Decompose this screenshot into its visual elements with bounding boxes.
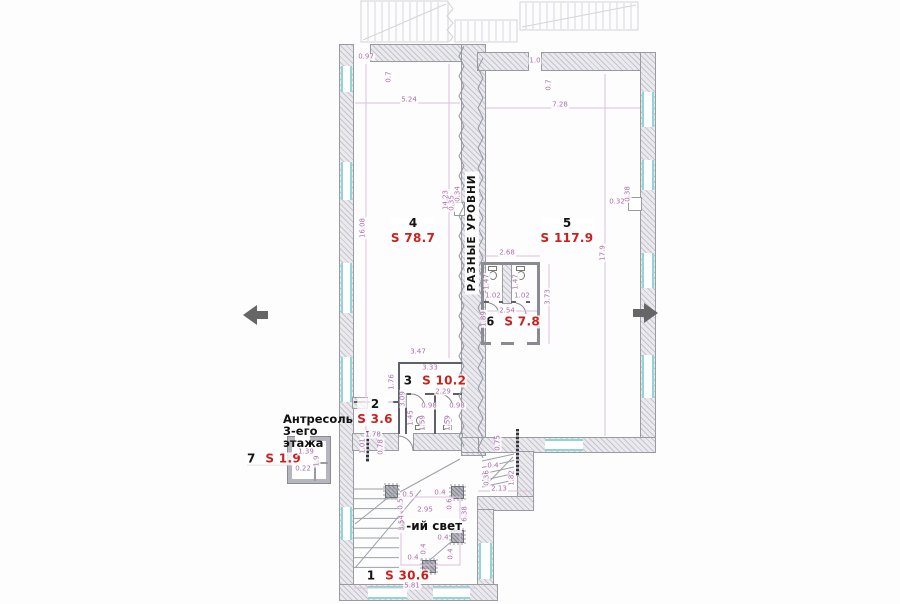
dimension-label: 0.5 (398, 497, 405, 510)
dimension-label: 0.97 (357, 54, 375, 61)
dimension-label: 7.28 (551, 102, 569, 109)
wc-room-wall (481, 262, 540, 265)
window (433, 586, 470, 599)
dimension-label: 0.22 (294, 466, 312, 473)
room-label: 3 S 10.2 (404, 374, 467, 387)
window (341, 66, 352, 92)
dimension-label: 1.47 (513, 273, 520, 291)
micro-text-strip (516, 429, 519, 476)
void-label: 3-ий свет (398, 519, 462, 533)
dimension-label: 2.13 (490, 486, 508, 493)
wall-segment (478, 53, 528, 70)
window (642, 92, 654, 127)
dimension-label: 0.7 (546, 78, 553, 91)
dimension-label: 0.6 (447, 497, 454, 510)
dimension-label: 1.59 (420, 414, 427, 432)
room-number: 4 (409, 217, 417, 230)
partition-wall (453, 393, 462, 395)
room-label: 6 S 7.8 (486, 315, 540, 328)
dimension-label: 1.02 (513, 293, 531, 300)
partition-wall (434, 393, 436, 434)
dimension-label: 0.36 (484, 469, 491, 487)
room-label: 1 S 30.6 (367, 569, 430, 582)
level-divider-label: РАЗНЫЕ УРОВНИ (465, 171, 479, 294)
window (642, 160, 654, 190)
wall-segment (371, 45, 462, 61)
dimension-label: 5.81 (403, 583, 421, 590)
dimension-label: 1.39 (297, 449, 315, 456)
dimension-label: 0.4 (421, 542, 428, 555)
dimension-label: 0.78 (378, 438, 385, 456)
dimension-label: 1.89 (481, 310, 488, 328)
window (368, 586, 407, 599)
wall-segment (462, 438, 478, 452)
room-number: 5 (563, 217, 571, 230)
room-label: 2 S 3.6 (357, 398, 393, 426)
wall-segment (478, 497, 533, 510)
wc-stall-front (484, 301, 489, 303)
window (642, 253, 654, 288)
dimension-label: 3.47 (409, 349, 427, 356)
room-area: S 78.7 (391, 232, 435, 245)
wc-room-wall (481, 342, 491, 345)
dimension-label: 1.01 (360, 437, 367, 455)
dimension-label: 1.0 (528, 58, 541, 65)
dimension-label: 0.7 (386, 70, 393, 83)
dimension-label: 2.29 (434, 389, 452, 396)
dimension-label: 2.54 (498, 308, 516, 315)
wc-stall-front (511, 301, 516, 303)
floor-plan: РАЗНЫЕ УРОВНИ Антресоль 3-его этажа 3-ий… (0, 0, 900, 604)
window (341, 263, 352, 313)
dimension-label: 0.4 (448, 547, 455, 560)
dimension-label: 3.54 (399, 514, 406, 532)
wc-room-wall (501, 342, 514, 345)
window (341, 357, 352, 402)
dimension-label: 0.4 (433, 490, 446, 497)
wall-segment (542, 53, 655, 70)
dimension-label: 1.59 (445, 414, 452, 432)
dimension-label: 1.9 (314, 454, 321, 467)
dimension-label: 0.4 (436, 535, 449, 542)
room-label: 5 S 117.9 (541, 217, 594, 245)
wc-stall-front (526, 301, 530, 303)
column (452, 487, 463, 498)
dimension-label: 1.82 (509, 469, 516, 487)
dimension-label: 1.47 (484, 273, 491, 291)
dimension-label: 0.4 (406, 555, 419, 562)
dimension-label: 5.24 (400, 97, 418, 104)
room-area: S 117.9 (541, 232, 594, 245)
wc-room-wall (537, 262, 540, 345)
window (642, 355, 654, 398)
dimension-label: 0.34 (455, 185, 462, 203)
dimension-label: 2.68 (498, 250, 516, 257)
room-number: 7 (247, 452, 255, 465)
wc-room-wall (527, 342, 540, 345)
room-area: S 3.6 (357, 413, 393, 426)
wall-niche (455, 203, 464, 215)
dimension-label: 6.38 (462, 505, 469, 523)
dimension-label: 3.09 (400, 390, 407, 408)
room-area: S 7.8 (504, 315, 540, 328)
dimension-label: 1.76 (389, 373, 396, 391)
window (341, 507, 352, 540)
wc-stall-pillar (503, 265, 511, 303)
column (386, 486, 397, 497)
arrow-right-icon (632, 303, 658, 323)
window (545, 439, 583, 451)
room-number: 1 (367, 569, 375, 582)
dimension-label: 16.08 (360, 217, 367, 239)
dimension-label: 0.38 (625, 185, 632, 203)
dimension-label: 3.73 (545, 288, 552, 306)
dimension-label: 3.33 (421, 365, 439, 372)
dimension-label: 0.98 (448, 403, 466, 410)
room-area: S 10.2 (422, 374, 466, 387)
dimension-label: 17.9 (600, 244, 607, 262)
drawing-decorations (0, 0, 900, 604)
window (479, 543, 492, 579)
dimension-label: 0.98 (420, 403, 438, 410)
window (341, 162, 352, 200)
arrow-left-icon (243, 305, 269, 325)
wc-stall-front (499, 301, 503, 303)
dimension-label: 1.02 (484, 293, 502, 300)
dimension-label: 0.75 (495, 434, 502, 452)
room-label: 7 S 1.9 (247, 452, 301, 465)
dimension-label: 1.45 (408, 409, 415, 427)
wall-segment (414, 434, 462, 450)
room-number: 3 (404, 374, 412, 387)
room-label: 4 S 78.7 (391, 217, 435, 245)
dimension-label: 2.95 (416, 507, 434, 514)
room-number: 2 (371, 398, 379, 411)
